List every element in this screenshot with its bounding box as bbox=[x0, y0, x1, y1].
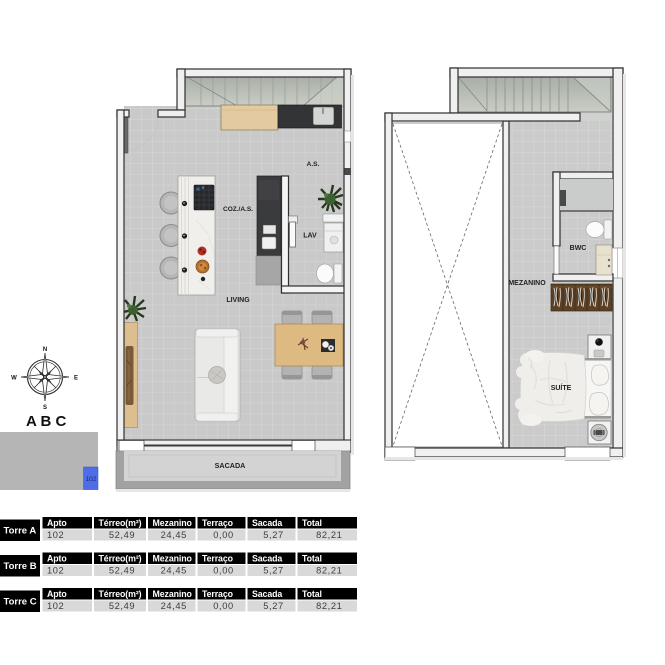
svg-text:Apto: Apto bbox=[47, 553, 67, 563]
svg-text:Térreo(m²): Térreo(m²) bbox=[99, 518, 142, 528]
svg-text:SACADA: SACADA bbox=[215, 461, 246, 470]
svg-text:Total: Total bbox=[302, 589, 322, 599]
svg-text:A B C: A B C bbox=[26, 413, 66, 430]
svg-text:Terraço: Terraço bbox=[202, 553, 234, 563]
svg-text:Total: Total bbox=[302, 518, 322, 528]
svg-text:82,21: 82,21 bbox=[316, 601, 342, 611]
svg-text:Sacada: Sacada bbox=[252, 518, 282, 528]
svg-text:102: 102 bbox=[47, 566, 64, 576]
svg-text:Térreo(m²): Térreo(m²) bbox=[99, 553, 142, 563]
svg-text:Total: Total bbox=[302, 553, 322, 563]
svg-text:A.S.: A.S. bbox=[307, 161, 320, 168]
svg-text:Torre C: Torre C bbox=[4, 597, 37, 608]
svg-text:LAV: LAV bbox=[303, 233, 317, 240]
svg-text:Sacada: Sacada bbox=[252, 589, 282, 599]
svg-text:Mezanino: Mezanino bbox=[153, 518, 193, 528]
svg-text:5,27: 5,27 bbox=[263, 530, 284, 540]
svg-text:SUÍTE: SUÍTE bbox=[551, 383, 572, 392]
svg-text:LIVING: LIVING bbox=[226, 297, 250, 304]
svg-text:0,00: 0,00 bbox=[213, 566, 234, 576]
svg-text:52,49: 52,49 bbox=[109, 530, 135, 540]
svg-text:Mezanino: Mezanino bbox=[153, 553, 193, 563]
svg-text:N: N bbox=[43, 347, 47, 353]
svg-text:W: W bbox=[11, 376, 17, 382]
svg-text:Apto: Apto bbox=[47, 589, 67, 599]
svg-text:82,21: 82,21 bbox=[316, 530, 342, 540]
svg-text:0,00: 0,00 bbox=[213, 530, 234, 540]
svg-text:E: E bbox=[74, 376, 78, 382]
svg-text:Terraço: Terraço bbox=[202, 518, 234, 528]
svg-text:Sacada: Sacada bbox=[252, 553, 282, 563]
svg-text:MEZANINO: MEZANINO bbox=[508, 280, 546, 287]
svg-text:Apto: Apto bbox=[47, 518, 67, 528]
svg-text:Torre B: Torre B bbox=[4, 561, 37, 572]
svg-text:Torre A: Torre A bbox=[4, 526, 37, 537]
svg-text:24,45: 24,45 bbox=[161, 530, 187, 540]
svg-text:24,45: 24,45 bbox=[161, 566, 187, 576]
svg-text:82,21: 82,21 bbox=[316, 566, 342, 576]
svg-text:Térreo(m²): Térreo(m²) bbox=[99, 589, 142, 599]
svg-text:S: S bbox=[43, 405, 47, 411]
svg-text:5,27: 5,27 bbox=[263, 566, 284, 576]
svg-text:52,49: 52,49 bbox=[109, 566, 135, 576]
svg-text:102: 102 bbox=[47, 601, 64, 611]
svg-text:Terraço: Terraço bbox=[202, 589, 234, 599]
svg-text:COZ./A.S.: COZ./A.S. bbox=[223, 206, 253, 213]
svg-text:24,45: 24,45 bbox=[161, 601, 187, 611]
svg-text:102: 102 bbox=[86, 476, 97, 483]
svg-text:52,49: 52,49 bbox=[109, 601, 135, 611]
svg-text:0,00: 0,00 bbox=[213, 601, 234, 611]
svg-text:5,27: 5,27 bbox=[263, 601, 284, 611]
svg-text:Mezanino: Mezanino bbox=[153, 589, 193, 599]
svg-text:BWC: BWC bbox=[570, 245, 587, 252]
svg-text:102: 102 bbox=[47, 530, 64, 540]
